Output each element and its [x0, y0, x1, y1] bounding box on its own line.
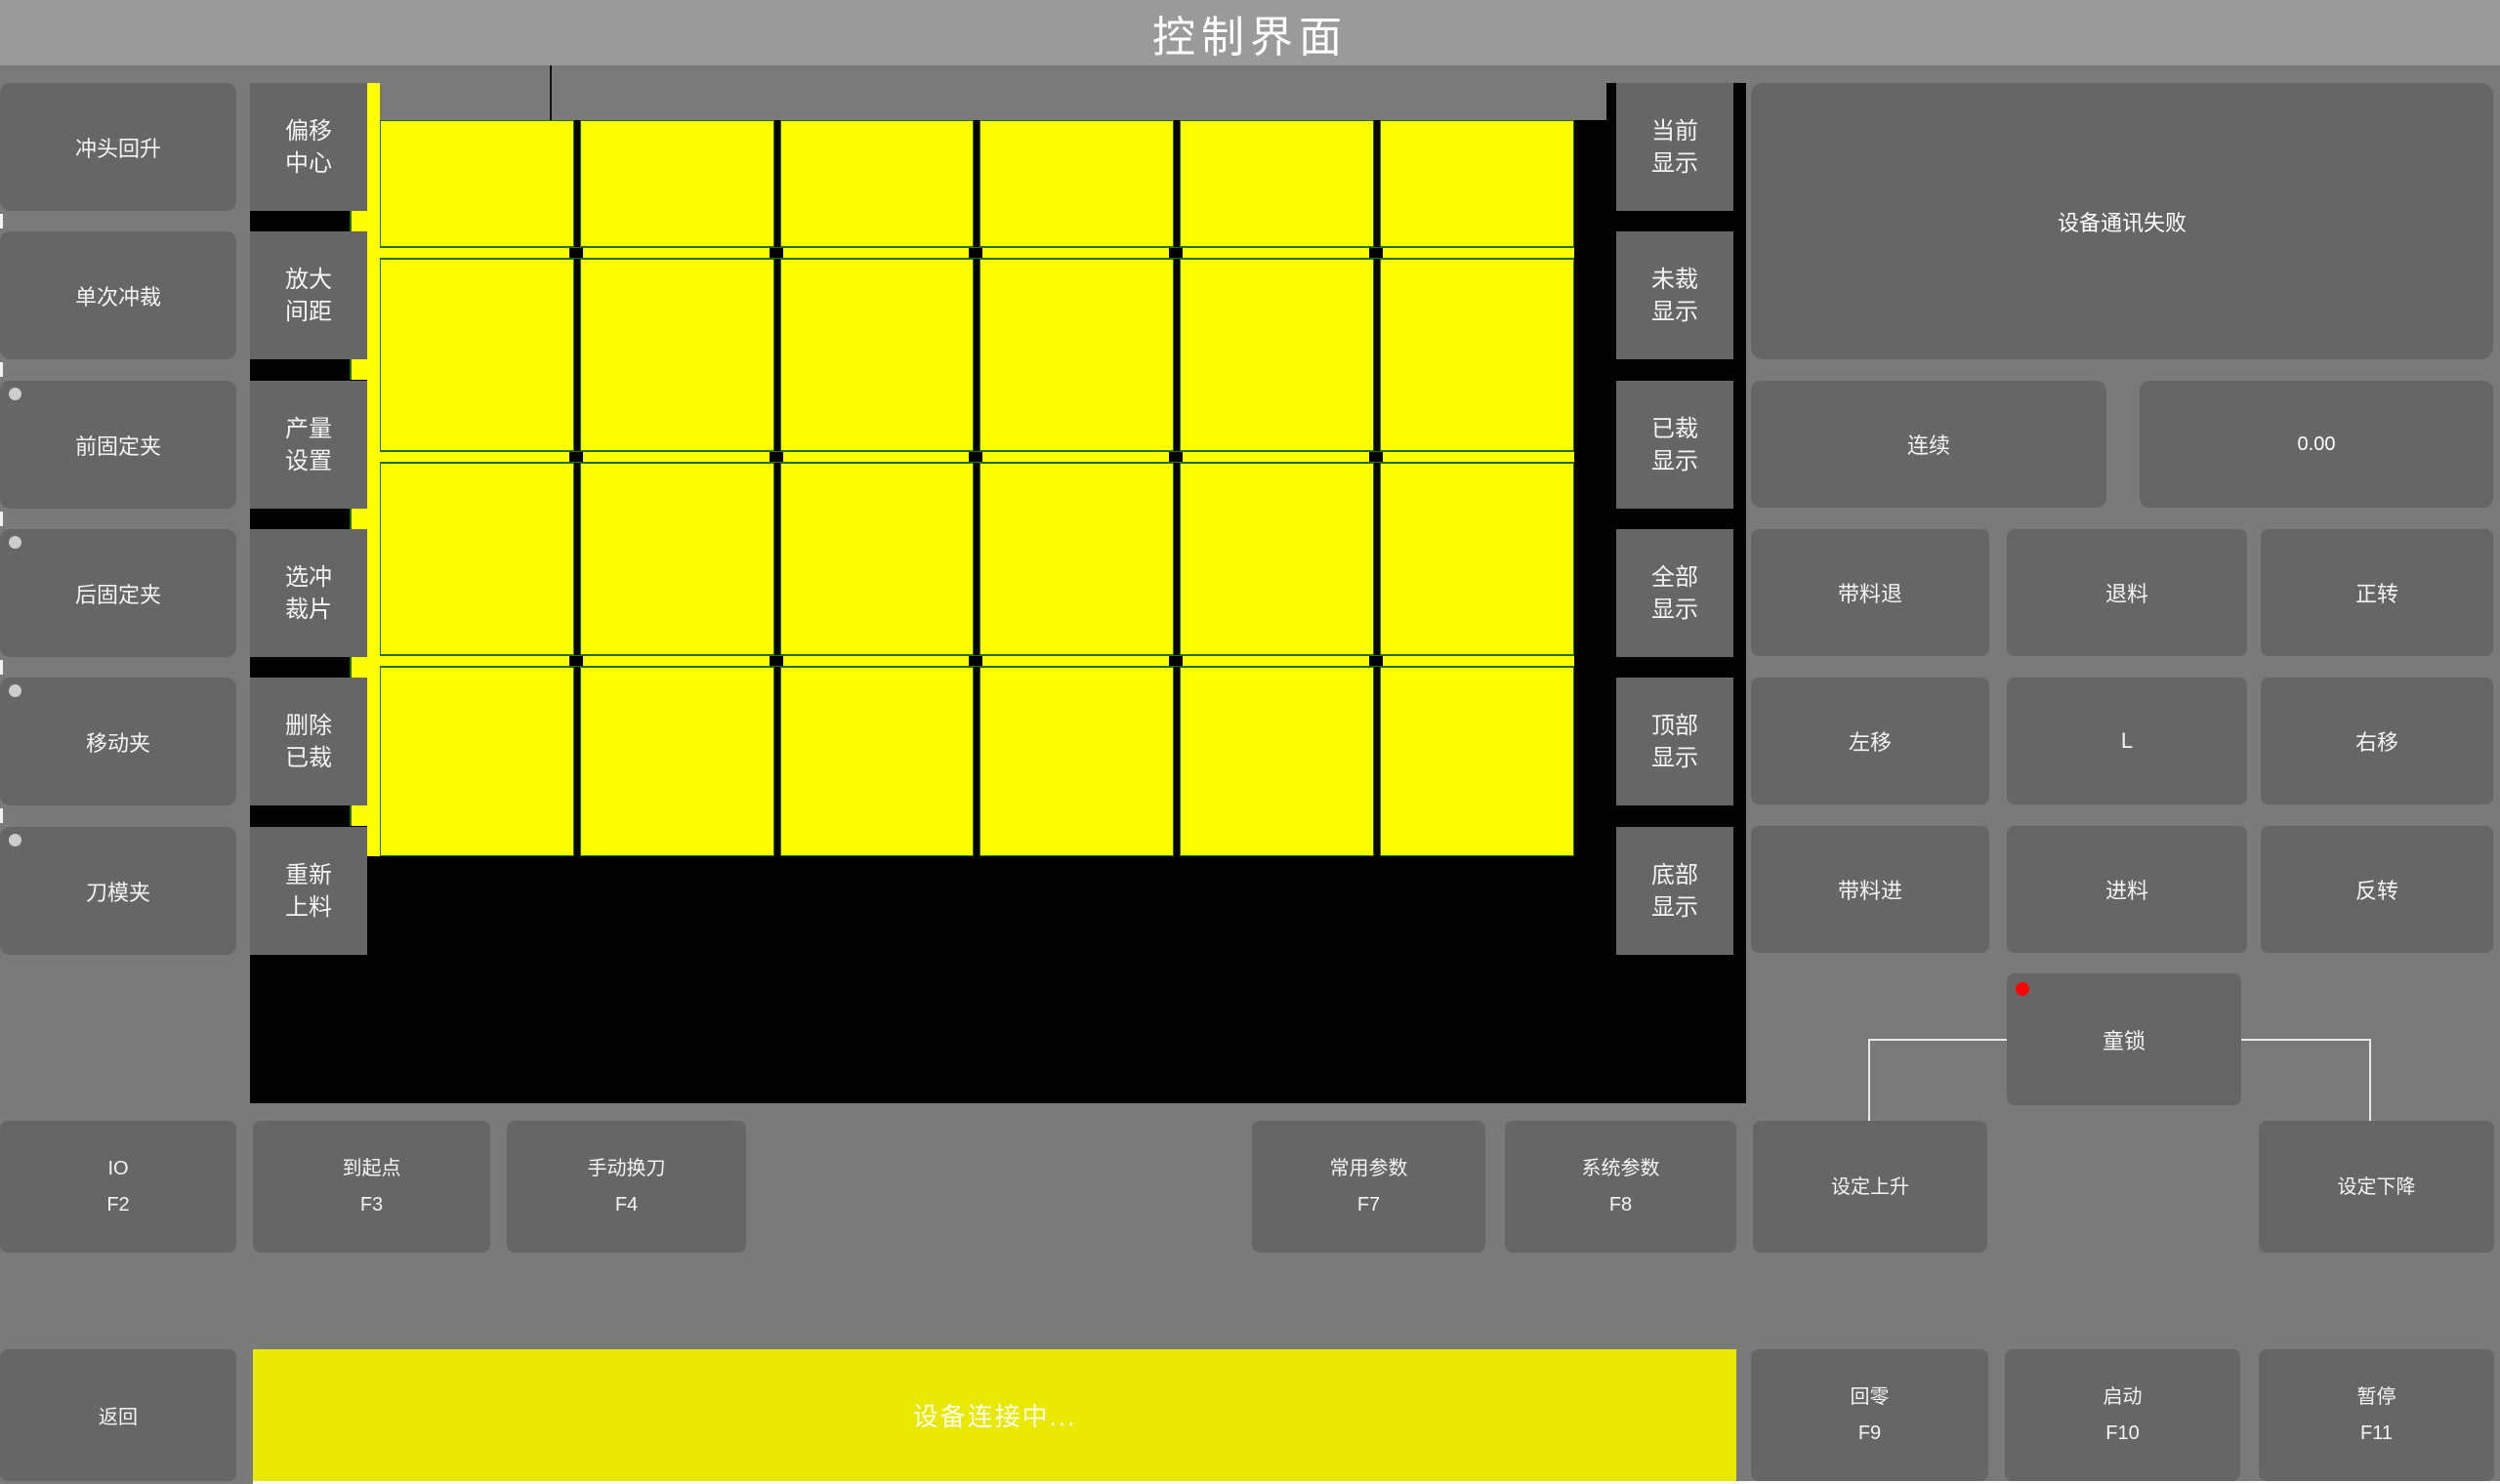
motion-button-label: 带料进	[1838, 874, 1902, 905]
left-button-label: 刀模夹	[86, 876, 150, 907]
cut-piece	[780, 463, 975, 655]
cut-piece	[780, 259, 975, 451]
function-key-label: F8	[1609, 1192, 1632, 1217]
function-button-IO[interactable]: IOF2	[0, 1121, 236, 1253]
display-button-label: 未裁显示	[1651, 264, 1698, 327]
bottom-button-label: 回零	[1851, 1384, 1890, 1410]
child-lock-button[interactable]: 童锁	[2007, 973, 2241, 1105]
display-button-未裁显示[interactable]: 未裁显示	[1616, 231, 1733, 359]
cut-piece	[1180, 463, 1374, 655]
device-status-panel: 设备通讯失败	[1751, 83, 2493, 359]
nesting-canvas	[250, 83, 1746, 1103]
continuous-mode-button[interactable]: 连续	[1751, 381, 2106, 508]
function-button-label: 设定下降	[2338, 1175, 2416, 1200]
function-button-label: IO	[107, 1156, 128, 1181]
cut-piece	[580, 259, 774, 451]
function-key-label: F11	[2360, 1421, 2393, 1446]
display-button-全部显示[interactable]: 全部显示	[1616, 529, 1733, 657]
web-notch	[569, 656, 583, 666]
function-key-label: F10	[2105, 1421, 2139, 1446]
web-notch	[969, 248, 982, 258]
material-tab	[350, 509, 369, 529]
cut-piece	[1380, 667, 1574, 856]
cut-piece	[979, 259, 1174, 451]
tool-button-删除已裁[interactable]: 删除已裁	[250, 678, 367, 805]
left-button-label: 单次冲裁	[75, 280, 161, 311]
web-notch	[1169, 248, 1183, 258]
motion-button-反转[interactable]: 反转	[2261, 826, 2493, 953]
left-button-后固定夹[interactable]: 后固定夹	[0, 529, 236, 657]
web-notch	[1169, 656, 1183, 666]
motion-button-左移[interactable]: 左移	[1751, 678, 1989, 804]
screen-edge-tick	[0, 808, 3, 823]
bottom-button-暂停[interactable]: 暂停F11	[2259, 1349, 2494, 1481]
material-tab	[350, 211, 369, 231]
clamp-led-indicator-icon	[9, 536, 21, 549]
clamp-led-indicator-icon	[9, 684, 21, 697]
pieces-row	[380, 259, 1574, 451]
tool-button-label: 删除已裁	[285, 710, 332, 773]
screen-edge-tick	[0, 660, 3, 675]
web-strip	[380, 451, 1574, 463]
function-button-label: 手动换刀	[588, 1156, 666, 1181]
display-button-当前显示[interactable]: 当前显示	[1616, 83, 1733, 211]
function-button-设定上升[interactable]: 设定上升	[1753, 1121, 1987, 1253]
page-title: 控制界面	[1152, 2, 1348, 64]
left-button-单次冲裁[interactable]: 单次冲裁	[0, 231, 236, 359]
web-notch	[1369, 656, 1383, 666]
title-bar: 控制界面	[0, 0, 2500, 65]
function-key-label: F7	[1357, 1192, 1380, 1217]
connection-status-text: 设备连接中...	[913, 1397, 1077, 1433]
display-button-底部显示[interactable]: 底部显示	[1616, 827, 1733, 955]
function-button-设定下降[interactable]: 设定下降	[2259, 1121, 2494, 1253]
pieces-row	[380, 463, 1574, 655]
screen-edge-tick	[0, 362, 3, 377]
motion-button-带料进[interactable]: 带料进	[1751, 826, 1989, 953]
web-notch	[1169, 452, 1183, 462]
pieces-row	[380, 120, 1574, 247]
left-button-label: 前固定夹	[75, 430, 161, 461]
child-lock-indicator-icon	[2016, 982, 2029, 996]
material-tab	[350, 359, 369, 380]
motion-button-正转[interactable]: 正转	[2261, 529, 2493, 656]
control-screen: 控制界面 冲头回升单次冲裁前固定夹后固定夹移动夹刀模夹偏移中心放大间距产量设置选…	[0, 0, 2500, 1484]
cut-piece	[380, 463, 574, 655]
display-button-label: 顶部显示	[1651, 710, 1698, 773]
web-notch	[1369, 248, 1383, 258]
function-button-系统参数[interactable]: 系统参数F8	[1505, 1121, 1736, 1253]
motion-button-label: 右移	[2355, 725, 2398, 757]
motion-button-右移[interactable]: 右移	[2261, 678, 2493, 804]
clamp-led-indicator-icon	[9, 834, 21, 846]
tool-button-偏移中心[interactable]: 偏移中心	[250, 83, 367, 211]
tool-button-放大间距[interactable]: 放大间距	[250, 231, 367, 359]
function-button-到起点[interactable]: 到起点F3	[253, 1121, 490, 1253]
bottom-button-回零[interactable]: 回零F9	[1751, 1349, 1988, 1481]
web-notch	[569, 452, 583, 462]
child-lock-wire	[1868, 1039, 2007, 1041]
tool-button-label: 产量设置	[285, 413, 332, 476]
tool-button-label: 重新上料	[285, 859, 332, 923]
motion-button-label: 反转	[2355, 874, 2398, 905]
motion-button-L[interactable]: L	[2007, 678, 2247, 804]
motion-button-label: 退料	[2105, 577, 2148, 608]
cut-piece	[1380, 120, 1574, 247]
grid-guide-line	[550, 65, 552, 120]
left-button-label: 后固定夹	[75, 578, 161, 609]
cut-piece	[979, 667, 1174, 856]
connection-status-bar: 设备连接中...	[253, 1349, 1736, 1481]
tool-button-label: 放大间距	[285, 264, 332, 327]
back-button[interactable]: 返回	[0, 1349, 236, 1481]
display-button-顶部显示[interactable]: 顶部显示	[1616, 678, 1733, 805]
left-button-label: 冲头回升	[75, 132, 161, 163]
material-tab	[350, 805, 369, 826]
function-key-label: F2	[106, 1192, 129, 1217]
tool-button-重新上料[interactable]: 重新上料	[250, 827, 367, 955]
cut-piece	[380, 259, 574, 451]
tool-button-选冲裁片[interactable]: 选冲裁片	[250, 529, 367, 657]
bottom-button-label: 暂停	[2357, 1384, 2396, 1410]
cut-piece	[780, 120, 975, 247]
clamp-led-indicator-icon	[9, 388, 21, 400]
left-button-前固定夹[interactable]: 前固定夹	[0, 381, 236, 509]
web-notch	[969, 452, 982, 462]
screen-edge-tick	[0, 512, 3, 526]
web-notch	[770, 452, 783, 462]
motion-button-进料[interactable]: 进料	[2007, 826, 2247, 953]
display-button-label: 当前显示	[1651, 115, 1698, 179]
pieces-grid	[380, 120, 1574, 856]
web-notch	[770, 656, 783, 666]
web-notch	[569, 248, 583, 258]
motion-button-label: 带料退	[1838, 577, 1902, 608]
function-button-label: 设定上升	[1831, 1175, 1909, 1200]
left-button-label: 移动夹	[86, 726, 150, 758]
cut-piece	[380, 120, 574, 247]
left-button-冲头回升[interactable]: 冲头回升	[0, 83, 236, 211]
function-button-手动换刀[interactable]: 手动换刀F4	[507, 1121, 746, 1253]
function-button-label: 到起点	[343, 1156, 401, 1181]
cut-piece	[1180, 259, 1374, 451]
display-button-label: 已裁显示	[1651, 413, 1698, 476]
cut-piece	[1380, 259, 1574, 451]
cut-piece	[1180, 667, 1374, 856]
position-value-display: 0.00	[2140, 381, 2493, 508]
tool-button-label: 选冲裁片	[285, 561, 332, 625]
web-strip	[380, 655, 1574, 667]
function-key-label: F4	[615, 1192, 638, 1217]
canvas-top-mask	[380, 83, 1606, 120]
motion-button-label: L	[2121, 728, 2133, 754]
display-button-label: 底部显示	[1651, 859, 1698, 923]
pieces-row	[380, 667, 1574, 856]
motion-button-退料[interactable]: 退料	[2007, 529, 2247, 656]
function-key-label: F9	[1858, 1421, 1881, 1446]
device-status-message: 设备通讯失败	[2058, 206, 2187, 237]
display-button-label: 全部显示	[1651, 561, 1698, 625]
tool-button-产量设置[interactable]: 产量设置	[250, 381, 367, 509]
display-button-已裁显示[interactable]: 已裁显示	[1616, 381, 1733, 509]
web-notch	[969, 656, 982, 666]
web-notch	[770, 248, 783, 258]
function-button-label: 常用参数	[1330, 1156, 1408, 1181]
cut-piece	[1380, 463, 1574, 655]
material-edge-strip	[367, 83, 380, 856]
function-button-常用参数[interactable]: 常用参数F7	[1252, 1121, 1485, 1253]
cut-piece	[580, 463, 774, 655]
cut-piece	[1180, 120, 1374, 247]
cut-piece	[580, 120, 774, 247]
child-lock-label: 童锁	[2103, 1024, 2146, 1055]
motion-button-带料退[interactable]: 带料退	[1751, 529, 1989, 656]
cut-piece	[580, 667, 774, 856]
cut-piece	[780, 667, 975, 856]
child-lock-wire	[1868, 1039, 1870, 1121]
left-button-刀模夹[interactable]: 刀模夹	[0, 827, 236, 955]
function-button-label: 系统参数	[1582, 1156, 1660, 1181]
cut-piece	[979, 120, 1174, 247]
bottom-button-启动[interactable]: 启动F10	[2005, 1349, 2240, 1481]
web-notch	[1369, 452, 1383, 462]
tool-button-label: 偏移中心	[285, 115, 332, 179]
left-button-移动夹[interactable]: 移动夹	[0, 678, 236, 805]
motion-button-label: 进料	[2105, 874, 2148, 905]
bottom-button-label: 启动	[2104, 1384, 2143, 1410]
child-lock-wire	[2241, 1039, 2371, 1041]
motion-button-label: 左移	[1849, 725, 1892, 757]
child-lock-wire	[2369, 1039, 2371, 1121]
material-tab	[350, 657, 369, 678]
cut-piece	[380, 667, 574, 856]
web-strip	[380, 247, 1574, 259]
cut-piece	[979, 463, 1174, 655]
screen-edge-tick	[0, 214, 3, 228]
motion-button-label: 正转	[2355, 577, 2398, 608]
function-key-label: F3	[360, 1192, 383, 1217]
